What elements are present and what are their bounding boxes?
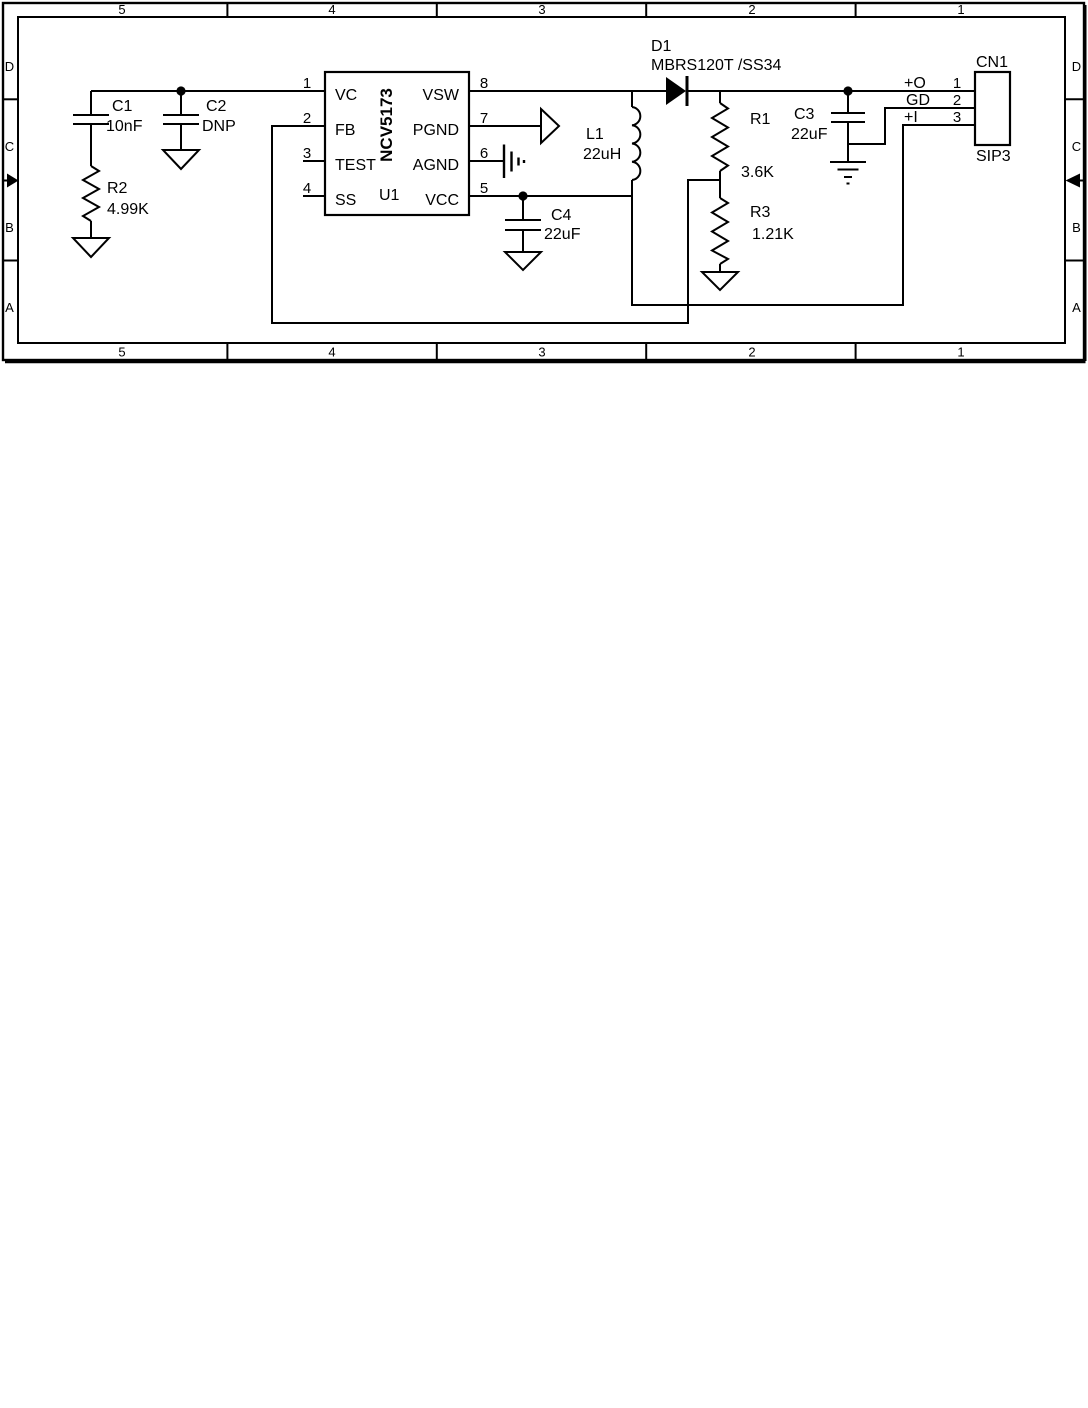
cn1-refdes: CN1: [976, 54, 1008, 71]
resistor-r1-symbol: [712, 91, 728, 180]
capacitor-plates: [831, 91, 865, 162]
ic-part-number: NCV5173: [377, 88, 396, 162]
center-arrow-right-icon: [1066, 174, 1081, 188]
row-label-right: B: [1072, 220, 1081, 235]
row-label-right: A: [1072, 300, 1081, 315]
ic-refdes: U1: [379, 187, 400, 204]
center-arrow-left-icon: [7, 174, 19, 188]
c4-refdes: C4: [551, 207, 572, 224]
sheet-border: [3, 3, 1086, 362]
col-label-top: 4: [328, 2, 335, 17]
diode-d1-symbol: [666, 76, 687, 106]
r1-value: 3.6K: [741, 164, 774, 181]
row-label-left: D: [5, 59, 14, 74]
r2-refdes: R2: [107, 180, 128, 197]
c3-value: 22uF: [791, 126, 828, 143]
pin-number: 8: [480, 75, 488, 92]
cn1-value: SIP3: [976, 148, 1011, 165]
pin-number: 1: [303, 75, 311, 92]
junction-dots: [176, 86, 852, 200]
col-label-bottom: 2: [748, 345, 755, 360]
gnd-power-icon: [505, 252, 541, 270]
inductor-coils: [632, 107, 640, 180]
c1-value: 10nF: [106, 118, 143, 135]
r2-value: 4.99K: [107, 201, 149, 218]
row-label-right: D: [1072, 59, 1081, 74]
pin-name-gnd: GD: [906, 92, 930, 109]
l1-value: 22uH: [583, 146, 621, 163]
col-label-bottom: 5: [118, 345, 125, 360]
connector-cn1-symbol: CN1 SIP3 1 2 3 +O GD +I: [904, 54, 1011, 165]
pin-name-out: +O: [904, 75, 926, 92]
capacitor-c2-symbol: [163, 91, 199, 169]
pin-name-ss: SS: [335, 192, 356, 209]
r3-refdes: R3: [750, 204, 771, 221]
c3-refdes: C3: [794, 106, 815, 123]
earth-ground-icon: [830, 162, 866, 184]
pin-number: 2: [953, 92, 961, 109]
c1-refdes: C1: [112, 98, 133, 115]
pin-name-vcc: VCC: [425, 192, 459, 209]
pin-name-vc: VC: [335, 87, 357, 104]
pin-number: 3: [303, 145, 311, 162]
pin-number: 7: [480, 110, 488, 127]
d1-value: MBRS120T /SS34: [651, 57, 782, 74]
d1-refdes: D1: [651, 38, 672, 55]
l1-refdes: L1: [586, 126, 604, 143]
diode-anode-triangle: [666, 77, 686, 105]
col-label-top: 3: [538, 2, 545, 17]
c2-value: DNP: [202, 118, 236, 135]
c4-value: 22uF: [544, 226, 581, 243]
pin-number: 2: [303, 110, 311, 127]
capacitor-c1-symbol: [73, 91, 109, 166]
pin-name-pgnd: PGND: [413, 122, 459, 139]
pin-name-in: +I: [904, 109, 918, 126]
col-label-top: 1: [957, 2, 964, 17]
r3-value: 1.21K: [752, 226, 794, 243]
pin-name-test: TEST: [335, 157, 376, 174]
inductor-l1-symbol: [632, 91, 640, 180]
col-label-top: 5: [118, 2, 125, 17]
row-label-left: B: [5, 220, 14, 235]
resistor-zigzag: [712, 198, 728, 264]
pin-name-fb: FB: [335, 122, 355, 139]
row-label-left: A: [5, 300, 14, 315]
row-label-right: C: [1072, 139, 1081, 154]
net-input-wire: [632, 125, 975, 305]
gnd-power-icon: [163, 150, 199, 169]
pgnd-port-arrow-icon: [541, 109, 559, 143]
ic-u1-symbol: 1 2 3 4 8 7 6 5 VC FB TEST SS VSW PGND A…: [303, 72, 488, 215]
resistor-r2-symbol: [73, 166, 109, 257]
gnd-power-icon: [702, 272, 738, 290]
row-label-left: C: [5, 139, 14, 154]
col-label-bottom: 4: [328, 345, 335, 360]
capacitor-c3-symbol: [830, 91, 866, 184]
pin-number: 1: [953, 75, 961, 92]
pin-name-vsw: VSW: [423, 87, 460, 104]
connector-body: [975, 72, 1010, 145]
outer-frame: [3, 3, 1084, 360]
pin-number: 4: [303, 180, 311, 197]
schematic-canvas: 5 4 3 2 1 5 4 3 2 1 D C B A D C B A: [0, 0, 1088, 1408]
r1-refdes: R1: [750, 111, 771, 128]
border-labels: 5 4 3 2 1 5 4 3 2 1 D C B A D C B A: [5, 2, 1081, 360]
inner-frame: [18, 17, 1065, 343]
pin-name-agnd: AGND: [413, 157, 459, 174]
pin-number: 5: [480, 180, 488, 197]
resistor-zigzag: [712, 103, 728, 171]
capacitor-plates: [73, 91, 109, 166]
pin-number: 6: [480, 145, 488, 162]
col-label-top: 2: [748, 2, 755, 17]
pin-number: 3: [953, 109, 961, 126]
schematic-page: 5 4 3 2 1 5 4 3 2 1 D C B A D C B A: [0, 0, 1088, 1408]
capacitor-plates: [505, 196, 541, 252]
col-label-bottom: 3: [538, 345, 545, 360]
resistor-zigzag: [83, 166, 99, 221]
capacitor-c4-symbol: [505, 196, 541, 270]
resistor-r3-symbol: [702, 180, 738, 290]
capacitor-plates: [163, 91, 199, 150]
c2-refdes: C2: [206, 98, 227, 115]
col-label-bottom: 1: [957, 345, 964, 360]
gnd-power-icon: [73, 238, 109, 257]
agnd-ground-icon: [504, 145, 524, 179]
